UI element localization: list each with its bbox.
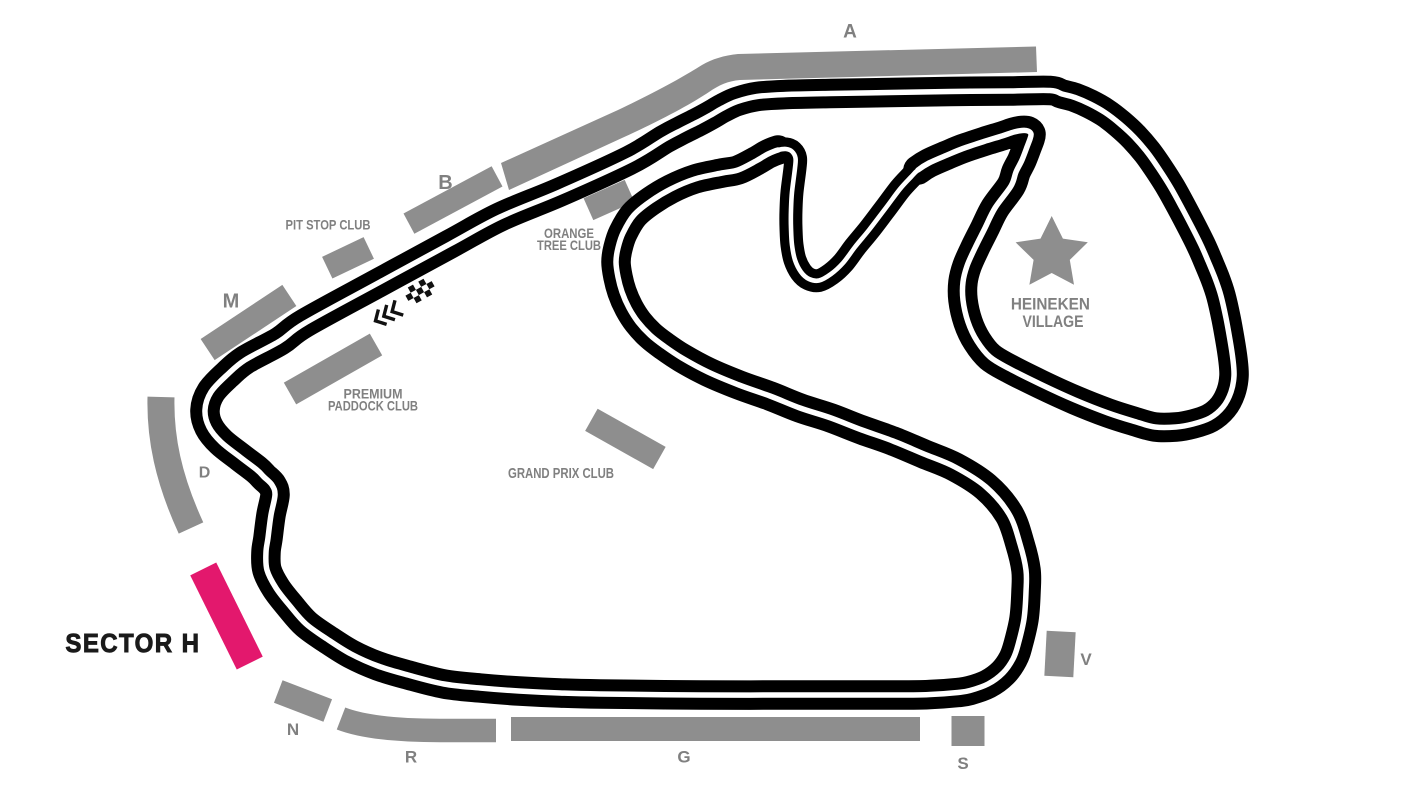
svg-text:D: D bbox=[199, 465, 211, 482]
svg-text:M: M bbox=[223, 291, 240, 313]
svg-text:PIT STOP CLUB: PIT STOP CLUB bbox=[286, 216, 371, 232]
svg-text:GRAND PRIX CLUB: GRAND PRIX CLUB bbox=[508, 465, 614, 482]
svg-text:VILLAGE: VILLAGE bbox=[1023, 312, 1084, 331]
svg-text:N: N bbox=[287, 720, 299, 739]
svg-text:S: S bbox=[957, 754, 968, 773]
svg-text:V: V bbox=[1080, 650, 1092, 669]
svg-text:TREE CLUB: TREE CLUB bbox=[537, 237, 601, 253]
svg-text:HEINEKEN: HEINEKEN bbox=[1011, 295, 1090, 314]
svg-text:A: A bbox=[843, 22, 857, 43]
svg-text:PADDOCK CLUB: PADDOCK CLUB bbox=[328, 397, 418, 413]
svg-text:SECTOR H: SECTOR H bbox=[65, 628, 200, 658]
svg-text:R: R bbox=[405, 748, 417, 767]
svg-text:B: B bbox=[438, 172, 452, 194]
svg-text:G: G bbox=[677, 748, 690, 767]
